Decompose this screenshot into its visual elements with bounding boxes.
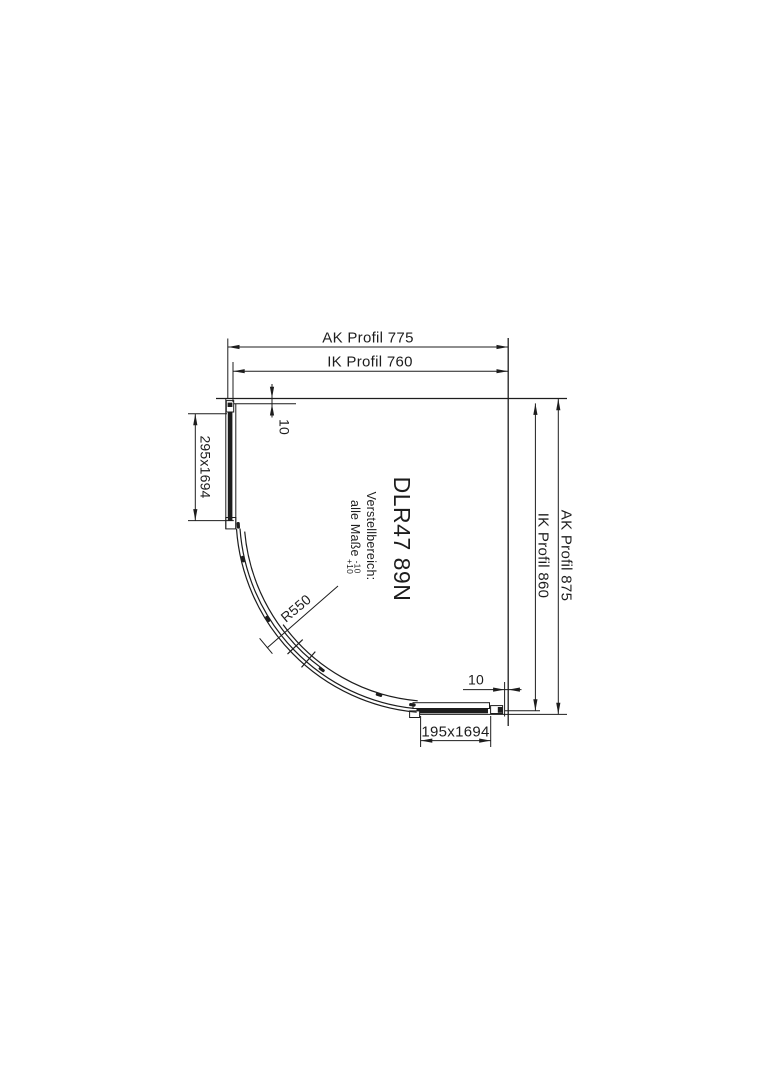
adjustment-scope-label: alle Maße bbox=[348, 500, 362, 557]
curved-door-arc-2 bbox=[283, 625, 418, 701]
dim-arrow-down bbox=[193, 509, 197, 520]
dimension-right-outer: AK Profil 875 bbox=[556, 399, 574, 715]
adjustment-scope: alle Maße-10+10 bbox=[345, 500, 363, 574]
radius-label: R550 bbox=[278, 591, 315, 625]
dim-label-gap-top: 10 bbox=[277, 419, 293, 435]
roller bbox=[237, 522, 241, 529]
technical-drawing: R550 AK Profil 775 IK Profil 760 IK Prof… bbox=[0, 0, 763, 1080]
dim-arrow-left bbox=[233, 369, 245, 373]
dim-arrow-down bbox=[270, 387, 274, 399]
dimension-gap-top: 10 bbox=[270, 384, 293, 435]
dim-arrow-up bbox=[270, 404, 274, 416]
radius-leader-tick bbox=[260, 638, 273, 653]
left-fixed-panel bbox=[226, 399, 236, 529]
dim-arrow-right bbox=[497, 345, 509, 349]
dim-arrow-right bbox=[493, 688, 505, 692]
dim-arrow-up bbox=[556, 399, 560, 411]
bottom-panel-glass bbox=[417, 708, 489, 713]
dim-label-gap-bottom: 10 bbox=[468, 672, 484, 688]
bottom-panel-track bbox=[413, 703, 490, 709]
dim-arrow-left bbox=[508, 688, 520, 692]
left-panel-glass bbox=[228, 412, 233, 521]
dimension-top-inner: IK Profil 760 bbox=[233, 354, 508, 402]
dim-label-right-inner: IK Profil 860 bbox=[535, 513, 552, 599]
dim-arrow-up bbox=[533, 403, 537, 415]
product-code: DLR47 89N bbox=[389, 477, 415, 602]
dimension-bottom-panel: 195x1694 bbox=[421, 716, 491, 747]
tolerance-plus: +10 bbox=[345, 559, 355, 574]
drawing-page: R550 AK Profil 775 IK Profil 760 IK Prof… bbox=[0, 0, 763, 1080]
dim-arrow-down bbox=[533, 699, 537, 711]
dim-arrow-right bbox=[497, 369, 509, 373]
dim-arrow-down bbox=[556, 703, 560, 715]
dim-label-left-panel: 295x1694 bbox=[198, 435, 214, 498]
dimension-right-inner: IK Profil 860 bbox=[533, 403, 551, 710]
dimension-left-panel: 295x1694 bbox=[188, 414, 234, 521]
dimension-gap-bottom: 10 bbox=[463, 672, 522, 692]
dim-arrow-up bbox=[193, 414, 197, 426]
dim-label-bottom-panel: 195x1694 bbox=[421, 724, 489, 741]
adjustment-title: Verstellbereich: bbox=[364, 492, 378, 581]
dim-label-top-inner: IK Profil 760 bbox=[327, 354, 413, 371]
dim-label-top-outer: AK Profil 775 bbox=[322, 330, 413, 347]
bottom-wall-profile-insert bbox=[498, 707, 503, 713]
bottom-fixed-panel bbox=[410, 703, 503, 718]
title-block: DLR47 89N Verstellbereich: alle Maße-10+… bbox=[345, 477, 415, 602]
left-wall-profile-insert bbox=[228, 403, 233, 407]
dim-arrow-left bbox=[228, 345, 240, 349]
dim-label-right-outer: AK Profil 875 bbox=[557, 510, 574, 601]
